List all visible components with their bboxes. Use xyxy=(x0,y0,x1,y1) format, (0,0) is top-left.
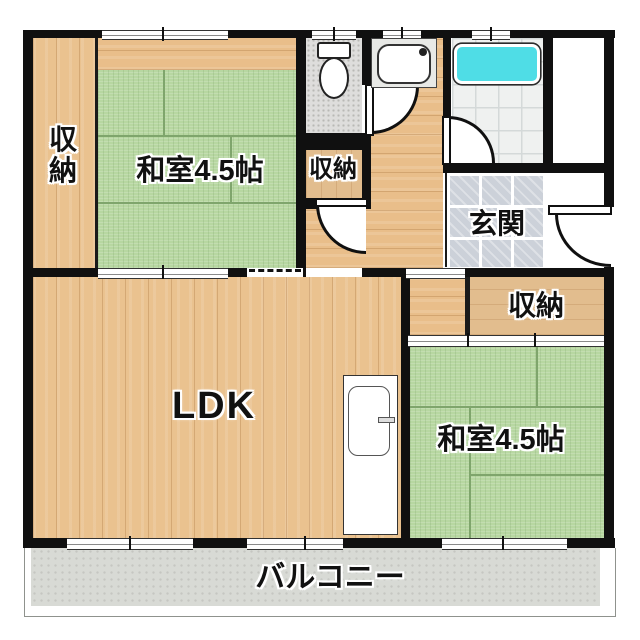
toilet-bowl-icon xyxy=(319,57,349,99)
wall-ldk-north-a xyxy=(23,268,98,277)
tatami-seam xyxy=(163,70,165,137)
bath-door-leaf xyxy=(442,116,451,165)
wall-ldk-north-c xyxy=(362,268,406,277)
washitsu-top-wood-strip xyxy=(98,38,296,70)
window-washitsu-bottom xyxy=(442,538,567,550)
window-tick xyxy=(304,536,306,550)
open-passage-ldk xyxy=(247,268,303,277)
label-washitsu-top: 和室4.5帖 xyxy=(110,155,290,187)
label-balcony: バルコニー xyxy=(230,561,430,595)
window-tick xyxy=(162,27,164,41)
tatami-seam xyxy=(98,135,296,137)
bathtub-icon xyxy=(454,44,540,84)
fusuma-tick xyxy=(467,333,469,347)
storage-middle-door-leaf xyxy=(315,198,368,207)
window-tick xyxy=(333,27,335,41)
label-storage-right: 収納 xyxy=(496,290,576,321)
label-ldk: LDK xyxy=(154,385,274,428)
wall-toilet-south xyxy=(296,133,371,150)
wall-bath-east xyxy=(543,38,553,173)
window-tick xyxy=(502,536,504,550)
corridor2-floor xyxy=(410,277,465,335)
label-storage-middle: 収納 xyxy=(303,157,363,184)
label-storage-left: 収納 xyxy=(44,124,82,187)
window-tick xyxy=(490,27,492,41)
tatami-seam xyxy=(98,202,296,204)
wall-storage-right-west xyxy=(465,277,470,335)
wall-storage-right-north xyxy=(465,268,604,277)
kitchen-faucet-icon xyxy=(378,417,395,423)
tatami-seam xyxy=(469,474,604,476)
wall-ldk-east xyxy=(401,277,410,538)
fusuma-washitsu-bottom xyxy=(408,335,604,347)
wall-right-lower xyxy=(604,267,614,548)
fusuma-tick xyxy=(534,333,536,347)
sliding-door-corridor2 xyxy=(406,268,465,279)
window-ldk-right xyxy=(247,538,343,550)
tatami-seam xyxy=(410,406,604,408)
window-washitsu-top xyxy=(102,30,228,40)
tatami-seam xyxy=(536,345,538,408)
wall-storage-left-divider xyxy=(95,38,98,268)
wall-left xyxy=(23,30,33,548)
window-tick xyxy=(129,536,131,550)
label-washitsu-bottom: 和室4.5帖 xyxy=(411,424,591,456)
toilet-door-leaf xyxy=(365,84,374,136)
entrance-door-leaf xyxy=(548,205,612,215)
pipe-space-floor xyxy=(553,38,604,163)
fusuma-tick xyxy=(162,265,164,279)
wall-right-upper xyxy=(604,30,614,207)
wall-ldk-north-b xyxy=(228,268,247,277)
washbasin-faucet-icon xyxy=(419,48,427,56)
genkan-step-line xyxy=(445,173,447,267)
floorplan: 収納 和室4.5帖 収納 玄関 収納 LDK 和室4.5帖 バルコニー xyxy=(0,0,640,640)
wall-genkan-north xyxy=(443,163,614,173)
wall-toilet-east-upper xyxy=(362,38,371,85)
wall-storage-middle-south xyxy=(296,198,317,209)
label-genkan: 玄関 xyxy=(457,208,537,239)
